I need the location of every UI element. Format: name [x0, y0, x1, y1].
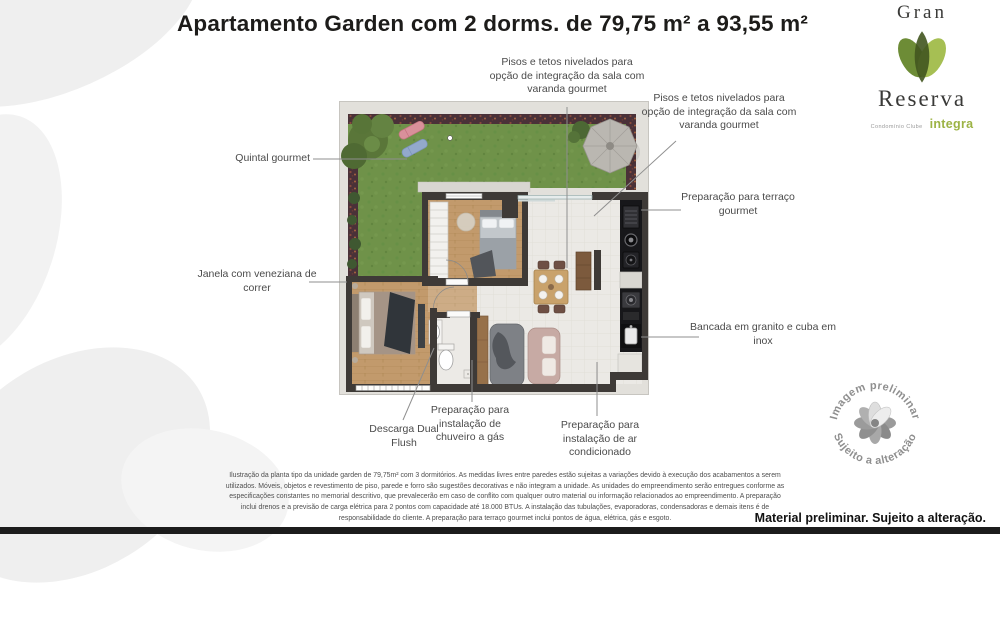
legal-disclaimer: Ilustração da planta tipo da unidade gar…	[222, 471, 788, 525]
callout-janela-veneziana: Janela com veneziana de correr	[197, 268, 317, 295]
bottom-bar	[0, 527, 1000, 534]
pinwheel-icon	[854, 402, 896, 444]
veneziana-window	[356, 386, 430, 391]
bedroom1-door	[446, 279, 468, 285]
callout-bancada-granito: Bancada em granito e cuba em inox	[690, 321, 836, 348]
callout-chuveiro-gas: Preparação para instalação de chuveiro a…	[427, 404, 513, 445]
hall-floor	[428, 284, 477, 312]
floor-plan	[338, 100, 650, 396]
page-title: Apartamento Garden com 2 dorms. de 79,75…	[0, 11, 985, 37]
appliance-gap	[620, 272, 642, 288]
callout-ar-condicionado: Preparação para instalação de ar condici…	[539, 419, 661, 460]
garden-bird	[448, 136, 453, 141]
sliding-glass-door	[518, 196, 592, 200]
integra-brand: integra	[930, 117, 974, 131]
sideboard-cabinet	[576, 252, 591, 290]
inox-sink	[625, 328, 637, 344]
background-swirl	[0, 299, 254, 631]
background-swirl	[0, 93, 92, 387]
callout-integration-right: Pisos e tetos nivelados para opção de in…	[640, 92, 798, 133]
callout-terraco-gourmet: Preparação para terraço gourmet	[670, 191, 806, 218]
preliminary-notice: Material preliminar. Sujeito a alteração…	[755, 511, 986, 525]
grill-appliance	[623, 206, 639, 228]
logo-name-top: Gran	[852, 2, 992, 24]
bathroom-door	[447, 311, 470, 317]
kitchen-counter	[618, 200, 642, 378]
sliding-glass-panel	[518, 200, 555, 202]
tall-cabinet	[477, 316, 488, 386]
preliminary-watermark: Imagem preliminar Sujeito a alteração	[818, 368, 933, 483]
leaf-logo-icon	[891, 24, 953, 88]
callout-quintal-gourmet: Quintal gourmet	[190, 152, 310, 166]
logo-name-bottom: Reserva	[852, 86, 992, 112]
callout-integration-top: Pisos e tetos nivelados para opção de in…	[488, 56, 646, 97]
logo-tagline: Condomínio Clube	[871, 124, 923, 130]
garden-paved-pad	[418, 182, 530, 192]
bedroom2-furniture	[352, 283, 425, 363]
brand-logo: Gran Reserva Condomínio Clube integra	[852, 2, 992, 131]
